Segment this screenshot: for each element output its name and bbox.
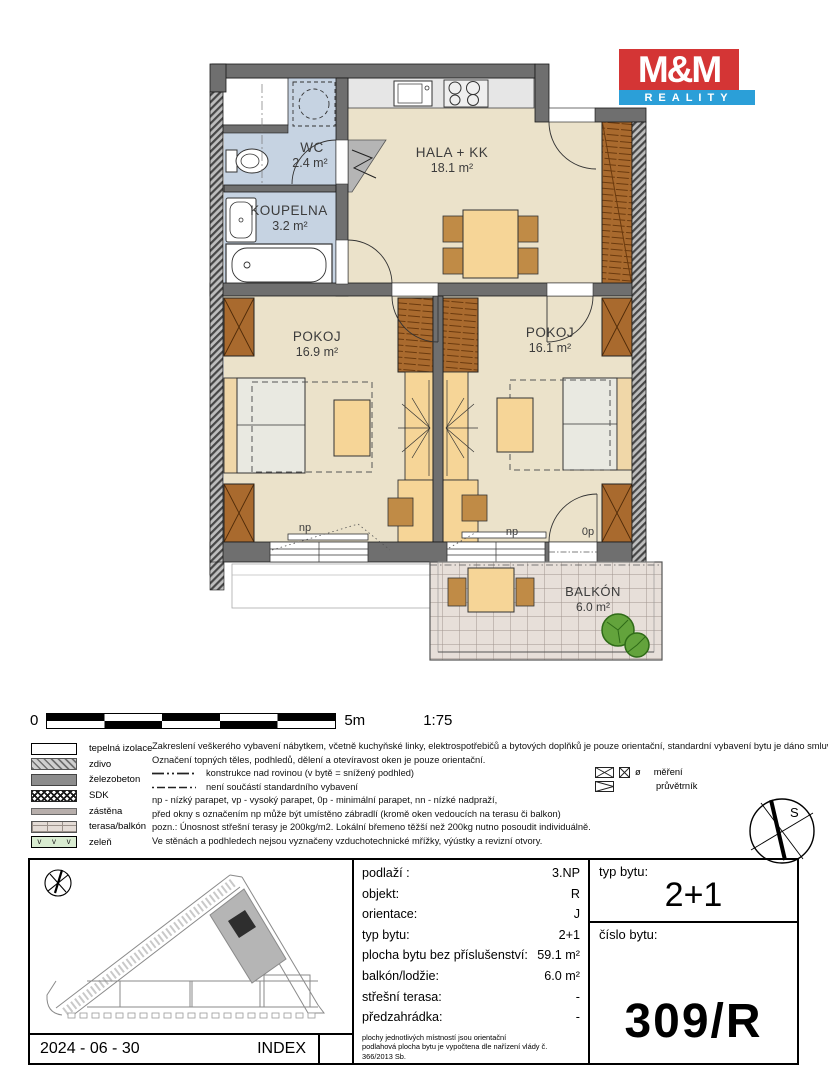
desk — [334, 400, 370, 456]
unit-number-box: číslo bytu: 309/R — [590, 923, 797, 1063]
symbol-mereni: ø měření — [595, 766, 697, 780]
legend-item: SDK — [31, 788, 152, 804]
right-wall — [632, 122, 646, 562]
scale-bar: 0 5m 1:75 — [30, 712, 452, 729]
radiator — [462, 532, 546, 538]
logo-reality: REALITY — [619, 90, 755, 105]
bathtub — [226, 244, 332, 286]
unit-type-value: 2+1 — [599, 876, 788, 915]
floorplan-sheet: WC 2.4 m² KOUPELNA 3.2 m² HALA + KK 18.1… — [0, 0, 828, 1080]
swatch-concrete — [31, 774, 77, 786]
room-area-koupelna: 3.2 m² — [272, 219, 307, 233]
param-row: objekt:R — [362, 884, 580, 905]
param-row: podlaží :3.NP — [362, 863, 580, 884]
window-label-np2: np — [506, 526, 518, 538]
unit-cell: typ bytu: 2+1 číslo bytu: 309/R — [590, 860, 797, 1063]
param-row: balkón/lodžie:6.0 m² — [362, 966, 580, 987]
parameters-cell: podlaží :3.NP objekt:R orientace:J typ b… — [354, 860, 590, 1063]
scale-ratio: 1:75 — [423, 712, 452, 729]
balcony-table — [468, 568, 514, 612]
north-arrow: S — [742, 790, 822, 864]
divider-wardrobe — [398, 298, 433, 372]
room-label-koupelna: KOUPELNA — [250, 203, 328, 218]
symbol-pruvetrnik: průvětrník — [595, 780, 697, 794]
swatch-greenery: vvv — [31, 836, 77, 848]
index-label: INDEX — [257, 1040, 318, 1058]
legend-item: železobeton — [31, 772, 152, 788]
footer-row: 2024 - 06 - 30 INDEX — [30, 1033, 352, 1063]
meter-small-icon — [619, 767, 630, 778]
swatch-masonry — [31, 758, 77, 770]
room-area-pokoj1: 16.9 m² — [296, 345, 338, 359]
window-label-np1: np — [299, 522, 311, 534]
meter-icon — [595, 767, 614, 778]
balcony — [430, 562, 662, 660]
swatch-insulation — [31, 743, 77, 755]
radiator — [288, 534, 368, 540]
note-line: Ve stěnách a podhledech nejsou vyznačeny… — [152, 835, 792, 849]
logo-reality-text: REALITY — [644, 92, 733, 104]
balcony-chair — [516, 578, 534, 606]
legend: tepelná izolace zdivo železobeton SDK zá… — [31, 741, 152, 850]
room-label-wc: WC — [300, 140, 324, 155]
legend-item: zástěna — [31, 803, 152, 819]
floor-plan: WC 2.4 m² KOUPELNA 3.2 m² HALA + KK 18.1… — [198, 48, 664, 676]
revision-date: 2024 - 06 - 30 — [30, 1040, 140, 1058]
param-row: orientace:J — [362, 904, 580, 925]
logo-mm-text: M&M — [638, 49, 720, 91]
symbol-key: ø měření průvětrník — [595, 766, 697, 793]
note-line: pozn.: Únosnost střešní terasy je 200kg/… — [152, 821, 792, 835]
room-label-pokoj2: POKOJ — [526, 325, 574, 340]
left-wall — [210, 92, 223, 575]
kitchen-counter — [348, 78, 534, 108]
dashed-line-icon — [152, 785, 196, 790]
bed — [224, 378, 237, 473]
window-label-0p: 0p — [582, 526, 594, 538]
legend-item: vvv zeleň — [31, 835, 152, 851]
vent-icon — [595, 781, 614, 792]
swatch-terrace — [31, 821, 77, 833]
note-line: před okny s označením np může být umístě… — [152, 808, 792, 822]
site-plan-cell: 2024 - 06 - 30 INDEX — [30, 860, 354, 1063]
unit-type-box: typ bytu: 2+1 — [590, 860, 797, 923]
param-row: plocha bytu bez příslušenství:59.1 m² — [362, 945, 580, 966]
divider-wardrobe — [443, 298, 478, 372]
note-line: Zakreslení veškerého vybavení nábytkem, … — [152, 740, 792, 754]
legend-item: zdivo — [31, 757, 152, 773]
title-block: 2024 - 06 - 30 INDEX podlaží :3.NP objek… — [28, 858, 799, 1065]
unit-number-value: 309/R — [599, 994, 788, 1049]
swatch-drywall — [31, 790, 77, 802]
dashdot-line-icon — [152, 771, 196, 776]
legend-item: terasa/balkón — [31, 819, 152, 835]
footer-end-cell — [318, 1035, 352, 1063]
unit-number-label: číslo bytu: — [599, 927, 788, 942]
scale-bar-graphic — [46, 713, 336, 729]
scale-zero: 0 — [30, 712, 38, 729]
room-area-wc: 2.4 m² — [292, 156, 327, 170]
stove — [444, 80, 488, 107]
swatch-partition — [31, 808, 77, 815]
scale-end: 5m — [344, 712, 365, 729]
param-row: předzahrádka:- — [362, 1007, 580, 1028]
site-compass-icon — [45, 870, 71, 896]
note-line: np - nízký parapet, vp - vysoký parapet,… — [152, 794, 792, 808]
note-line: Označení topných těles, podhledů, dělení… — [152, 754, 792, 768]
chair — [388, 498, 413, 526]
chair — [462, 495, 487, 521]
hala-wardrobe — [602, 116, 632, 290]
param-row: typ bytu:2+1 — [362, 925, 580, 946]
room-label-pokoj1: POKOJ — [293, 329, 341, 344]
room-label-hala: HALA + KK — [416, 145, 488, 160]
param-row: střešní terasa:- — [362, 987, 580, 1008]
site-plan — [32, 863, 350, 1033]
room-label-balkon: BALKÓN — [565, 584, 621, 599]
room-area-hala: 18.1 m² — [431, 161, 473, 175]
logo-mm: M&M — [619, 49, 739, 90]
notes: Zakreslení veškerého vybavení nábytkem, … — [152, 740, 792, 848]
room-area-pokoj2: 16.1 m² — [529, 341, 571, 355]
kitchen-sink — [394, 81, 432, 106]
compass-label: S — [790, 805, 799, 820]
shaft — [222, 78, 288, 125]
balcony-chair — [448, 578, 466, 606]
table-footnote: plochy jednotlivých místností jsou orien… — [362, 1033, 580, 1062]
legend-item: tepelná izolace — [31, 741, 152, 757]
desk — [497, 398, 533, 452]
room-area-balkon: 6.0 m² — [576, 600, 610, 614]
